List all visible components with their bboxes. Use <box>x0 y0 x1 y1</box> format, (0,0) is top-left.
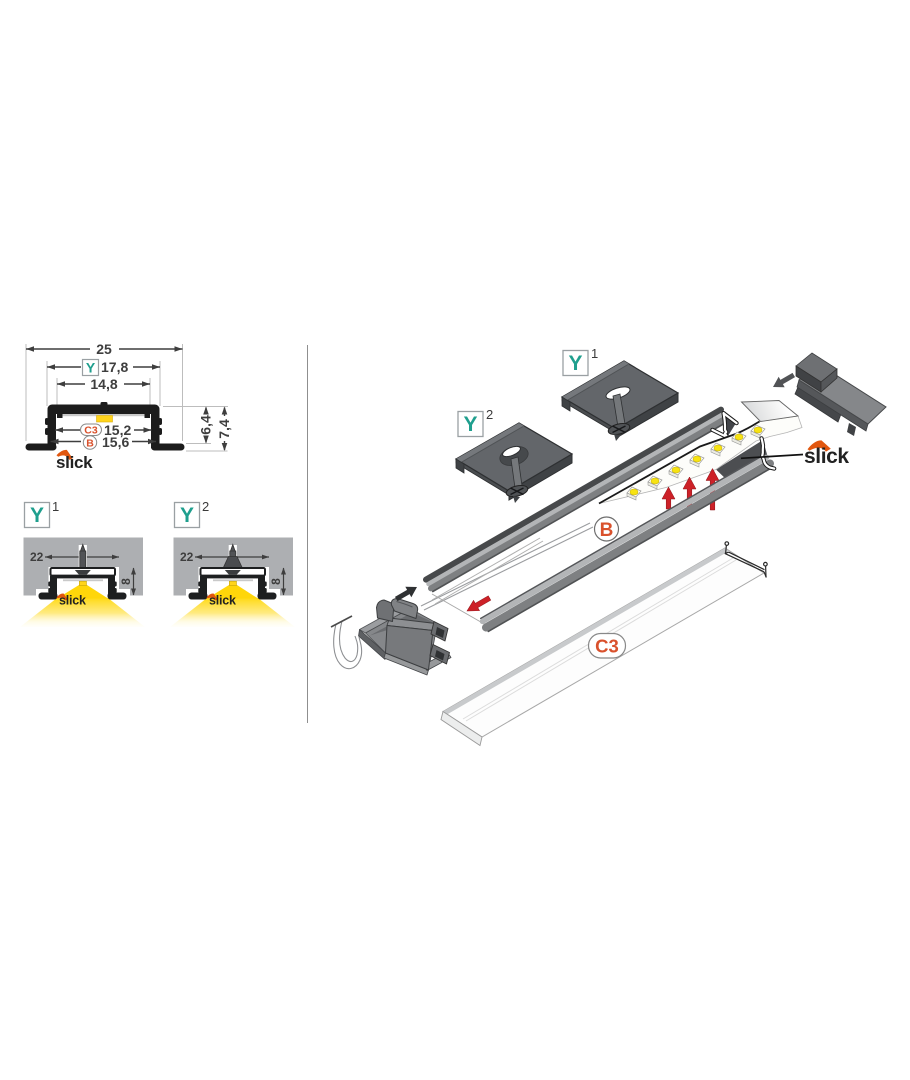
svg-text:7,4: 7,4 <box>216 419 232 439</box>
svg-text:Y: Y <box>463 413 477 436</box>
svg-text:25: 25 <box>96 341 112 357</box>
svg-text:slick: slick <box>56 453 93 472</box>
svg-text:17,8: 17,8 <box>101 359 128 375</box>
svg-text:Y: Y <box>86 360 96 376</box>
svg-text:22: 22 <box>30 550 44 564</box>
svg-text:8: 8 <box>119 578 133 585</box>
svg-text:C3: C3 <box>84 425 98 437</box>
svg-text:Y: Y <box>568 352 582 375</box>
svg-text:B: B <box>600 520 614 541</box>
svg-text:22: 22 <box>180 550 194 564</box>
svg-text:slick: slick <box>804 445 849 468</box>
svg-text:C3: C3 <box>595 636 619 657</box>
svg-text:8: 8 <box>269 578 283 585</box>
svg-text:slick: slick <box>209 594 236 608</box>
svg-text:1: 1 <box>591 346 598 361</box>
svg-text:1: 1 <box>52 499 59 514</box>
svg-text:Y: Y <box>30 504 44 527</box>
svg-text:14,8: 14,8 <box>90 376 117 392</box>
svg-text:Y: Y <box>180 504 194 527</box>
svg-text:2: 2 <box>202 499 209 514</box>
svg-text:B: B <box>86 438 94 450</box>
svg-text:15,6: 15,6 <box>102 434 129 450</box>
svg-text:2: 2 <box>486 407 493 422</box>
svg-text:6,4: 6,4 <box>198 415 214 435</box>
svg-text:slick: slick <box>59 594 86 608</box>
